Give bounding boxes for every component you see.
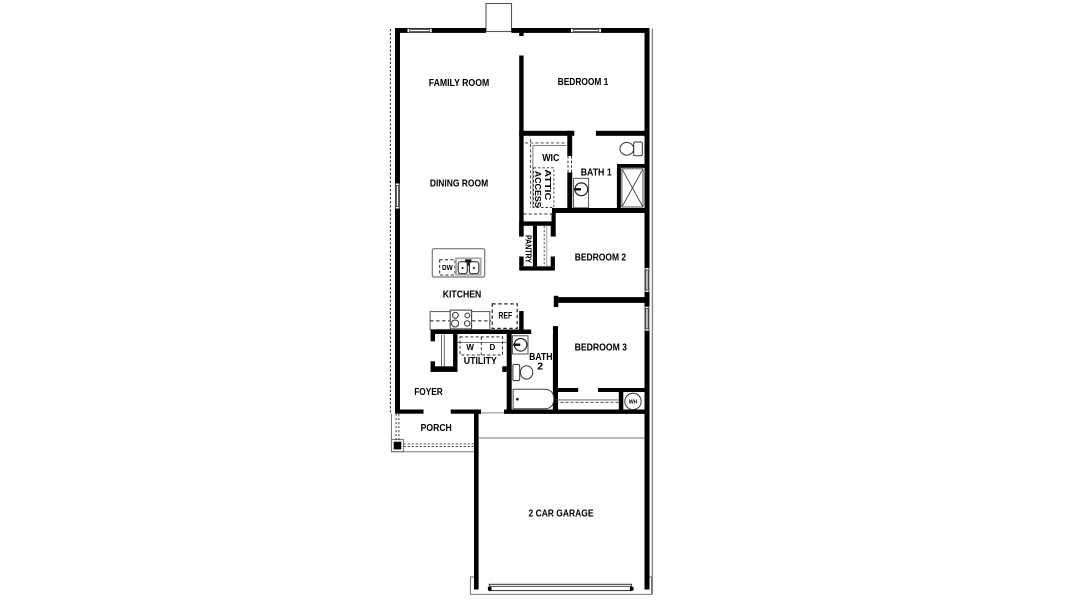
- svg-text:BEDROOM 2: BEDROOM 2: [575, 251, 627, 263]
- svg-text:BEDROOM 1: BEDROOM 1: [558, 76, 609, 88]
- svg-text:PANTRY: PANTRY: [523, 235, 533, 263]
- svg-text:FAMILY ROOM: FAMILY ROOM: [429, 77, 490, 89]
- svg-text:ATTIC: ATTIC: [543, 169, 552, 200]
- svg-text:BEDROOM 3: BEDROOM 3: [575, 342, 628, 354]
- svg-text:DW: DW: [442, 263, 453, 272]
- svg-text:REF: REF: [498, 311, 512, 321]
- svg-text:UTILITY: UTILITY: [464, 355, 497, 367]
- svg-text:FOYER: FOYER: [414, 386, 443, 398]
- svg-text:ACCESS: ACCESS: [533, 171, 542, 209]
- svg-text:2: 2: [537, 360, 543, 372]
- svg-text:BATH 1: BATH 1: [581, 166, 612, 178]
- svg-text:W: W: [466, 343, 474, 352]
- svg-text:PORCH: PORCH: [421, 422, 452, 434]
- svg-text:WH: WH: [629, 400, 638, 406]
- svg-text:KITCHEN: KITCHEN: [443, 289, 482, 301]
- svg-text:DINING ROOM: DINING ROOM: [430, 178, 488, 190]
- svg-text:2 CAR GARAGE: 2 CAR GARAGE: [529, 508, 594, 520]
- svg-text:WIC: WIC: [542, 153, 559, 164]
- svg-text:D: D: [490, 343, 496, 352]
